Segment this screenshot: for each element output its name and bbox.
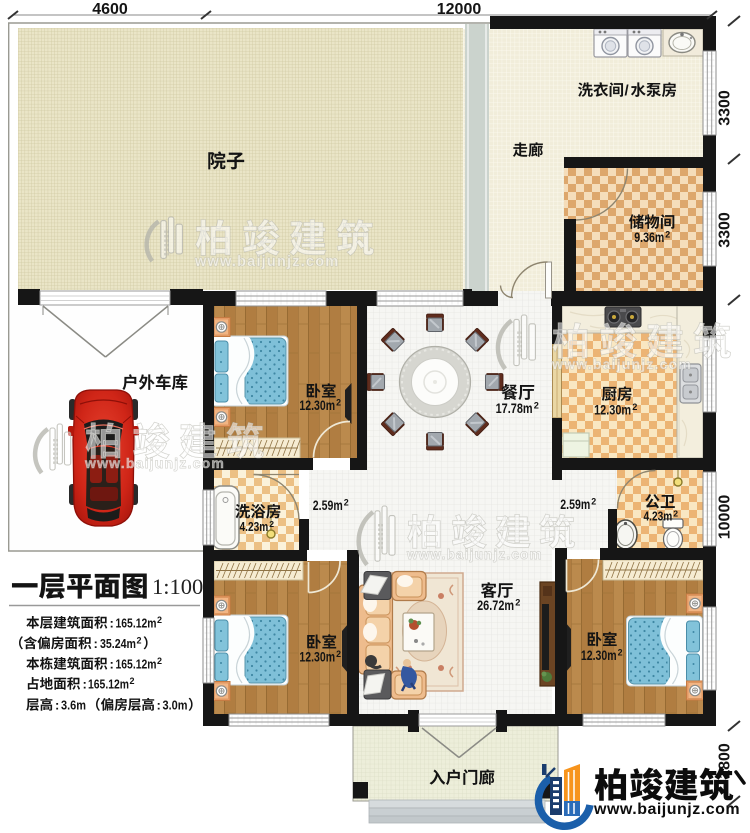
svg-text:9.36m: 9.36m [634, 230, 664, 245]
svg-text:10000: 10000 [717, 495, 734, 540]
svg-text:12.30m: 12.30m [299, 398, 335, 413]
svg-text:2: 2 [157, 656, 162, 666]
svg-text:165.12m: 165.12m [116, 617, 157, 631]
svg-text:1:100: 1:100 [152, 574, 203, 599]
svg-text:12.30m: 12.30m [594, 402, 631, 418]
svg-text::: : [94, 636, 98, 651]
svg-text:2: 2 [632, 402, 637, 412]
svg-text:2: 2 [130, 676, 135, 686]
svg-text:2: 2 [137, 636, 142, 646]
svg-text::: : [83, 677, 87, 692]
svg-text:www.baijunjz.com: www.baijunjz.com [194, 254, 339, 270]
svg-text:3.0m: 3.0m [163, 699, 188, 713]
svg-text:www.baijunjz.com: www.baijunjz.com [84, 455, 225, 471]
svg-text:2: 2 [665, 229, 670, 239]
svg-text:2: 2 [157, 615, 162, 625]
svg-text:17.78m: 17.78m [496, 400, 533, 416]
svg-text:35.24m: 35.24m [100, 637, 136, 651]
svg-text:2: 2 [336, 649, 341, 659]
svg-text:2: 2 [618, 647, 623, 657]
svg-text::: : [110, 657, 114, 672]
svg-text:www.baijunjz.com: www.baijunjz.com [406, 547, 543, 562]
svg-text::: : [110, 616, 114, 631]
svg-text:2: 2 [673, 508, 678, 518]
svg-text:12.30m: 12.30m [299, 649, 335, 664]
svg-text:3.6m: 3.6m [61, 699, 86, 713]
svg-text:4.23m: 4.23m [240, 519, 269, 534]
svg-text:2: 2 [515, 597, 520, 607]
svg-text::: : [157, 698, 161, 713]
svg-text:2: 2 [336, 397, 341, 407]
svg-text:12000: 12000 [437, 1, 482, 18]
svg-text::: : [55, 698, 59, 713]
svg-text:2: 2 [591, 496, 596, 506]
svg-text:2: 2 [344, 497, 349, 507]
svg-text:4.23m: 4.23m [644, 509, 673, 524]
svg-text:2.59m: 2.59m [313, 498, 343, 513]
svg-text:3300: 3300 [717, 212, 734, 248]
svg-text:26.72m: 26.72m [477, 597, 514, 613]
svg-text:www.baijunjz.com: www.baijunjz.com [551, 356, 692, 372]
svg-text:165.12m: 165.12m [116, 658, 157, 672]
svg-text:165.12m: 165.12m [88, 678, 129, 692]
svg-text:12.30m: 12.30m [581, 648, 617, 663]
svg-text:2: 2 [534, 400, 539, 410]
svg-text:2.59m: 2.59m [560, 497, 590, 512]
svg-text:2: 2 [269, 519, 274, 529]
svg-text:4600: 4600 [92, 1, 128, 18]
svg-text:3300: 3300 [717, 90, 734, 126]
svg-text:www.baijunjz.com: www.baijunjz.com [593, 801, 740, 818]
